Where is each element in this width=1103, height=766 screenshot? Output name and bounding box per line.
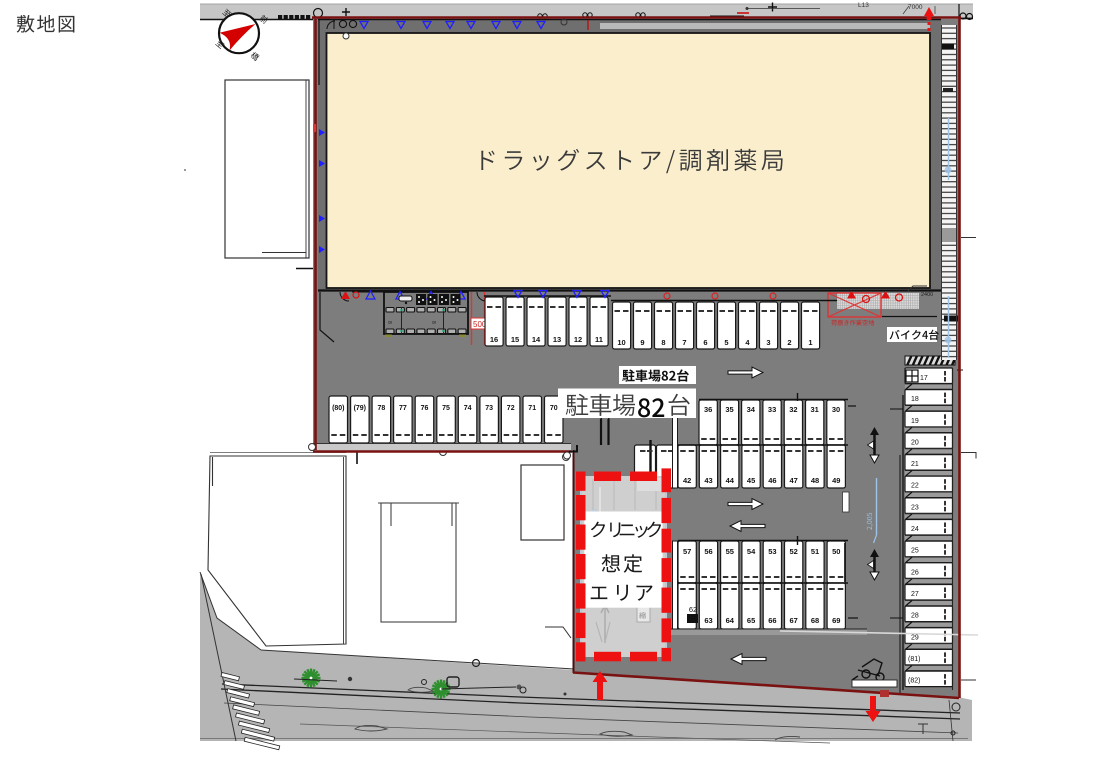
svg-text:43: 43	[704, 476, 712, 485]
svg-text:8: 8	[430, 321, 436, 324]
svg-text:48: 48	[811, 476, 819, 485]
svg-text:57: 57	[683, 547, 691, 556]
svg-text:54: 54	[747, 547, 756, 556]
svg-text:34: 34	[747, 405, 756, 414]
svg-text:71: 71	[528, 405, 536, 412]
svg-text:30: 30	[832, 405, 840, 414]
svg-text:73: 73	[485, 405, 493, 412]
svg-text:33: 33	[768, 405, 776, 414]
svg-text:14: 14	[532, 335, 541, 344]
svg-text:8: 8	[661, 338, 665, 347]
svg-text:6: 6	[703, 338, 707, 347]
svg-text:28: 28	[911, 613, 919, 620]
svg-text:21: 21	[911, 461, 919, 468]
svg-text:2: 2	[787, 338, 791, 347]
svg-text:49: 49	[832, 476, 840, 485]
svg-text:72: 72	[507, 405, 515, 412]
svg-text:(80): (80)	[332, 405, 344, 412]
svg-text:18: 18	[911, 396, 919, 403]
svg-text:55: 55	[726, 547, 734, 556]
svg-text:5: 5	[724, 338, 728, 347]
svg-text:1: 1	[808, 338, 812, 347]
svg-text:77: 77	[399, 405, 407, 412]
svg-text:9: 9	[640, 338, 644, 347]
svg-text:19: 19	[911, 418, 919, 425]
svg-text:68: 68	[811, 616, 819, 625]
svg-text:23: 23	[911, 504, 919, 511]
svg-text:66: 66	[768, 616, 776, 625]
svg-text:22: 22	[911, 483, 919, 490]
svg-text:52: 52	[790, 547, 798, 556]
svg-text:46: 46	[768, 476, 776, 485]
svg-text:27: 27	[911, 591, 919, 598]
svg-text:63: 63	[704, 616, 712, 625]
svg-text:29: 29	[911, 634, 919, 641]
svg-text:(82): (82)	[908, 678, 920, 685]
svg-text:12: 12	[574, 335, 582, 344]
svg-text:16: 16	[490, 335, 498, 344]
svg-text:74: 74	[464, 405, 472, 412]
svg-text:51: 51	[811, 547, 819, 556]
svg-text:53: 53	[768, 547, 776, 556]
svg-text:17: 17	[920, 375, 928, 382]
svg-text:(81): (81)	[908, 656, 920, 663]
svg-text:78: 78	[378, 405, 386, 412]
svg-text:11: 11	[595, 335, 603, 344]
svg-text:76: 76	[421, 405, 429, 412]
svg-text:L13: L13	[858, 2, 869, 9]
svg-text:3: 3	[766, 338, 770, 347]
svg-text:2400: 2400	[921, 292, 933, 298]
svg-text:31: 31	[811, 405, 819, 414]
svg-text:32: 32	[789, 405, 797, 414]
svg-text:56: 56	[704, 547, 712, 556]
svg-text:42: 42	[683, 476, 691, 485]
svg-text:70: 70	[550, 405, 558, 412]
svg-text:7000: 7000	[908, 4, 923, 11]
svg-text:69: 69	[832, 616, 840, 625]
svg-text:20: 20	[911, 439, 919, 446]
svg-text:75: 75	[442, 405, 450, 412]
svg-text:7: 7	[682, 338, 686, 347]
svg-text:8: 8	[386, 321, 392, 324]
svg-text:67: 67	[790, 616, 798, 625]
svg-text:65: 65	[747, 616, 755, 625]
svg-text:13: 13	[553, 335, 561, 344]
svg-text:15: 15	[511, 335, 519, 344]
svg-text:35: 35	[725, 405, 733, 414]
svg-text:62: 62	[689, 605, 697, 614]
svg-text:44: 44	[726, 476, 735, 485]
svg-text:45: 45	[747, 476, 755, 485]
svg-text:47: 47	[790, 476, 798, 485]
svg-text:25: 25	[911, 548, 919, 555]
svg-text:64: 64	[726, 616, 735, 625]
svg-text:(79): (79)	[354, 405, 366, 412]
svg-text:10: 10	[617, 338, 625, 347]
svg-text:24: 24	[911, 526, 919, 533]
svg-text:50: 50	[832, 547, 840, 556]
svg-text:26: 26	[911, 569, 919, 576]
svg-text:36: 36	[704, 405, 712, 414]
